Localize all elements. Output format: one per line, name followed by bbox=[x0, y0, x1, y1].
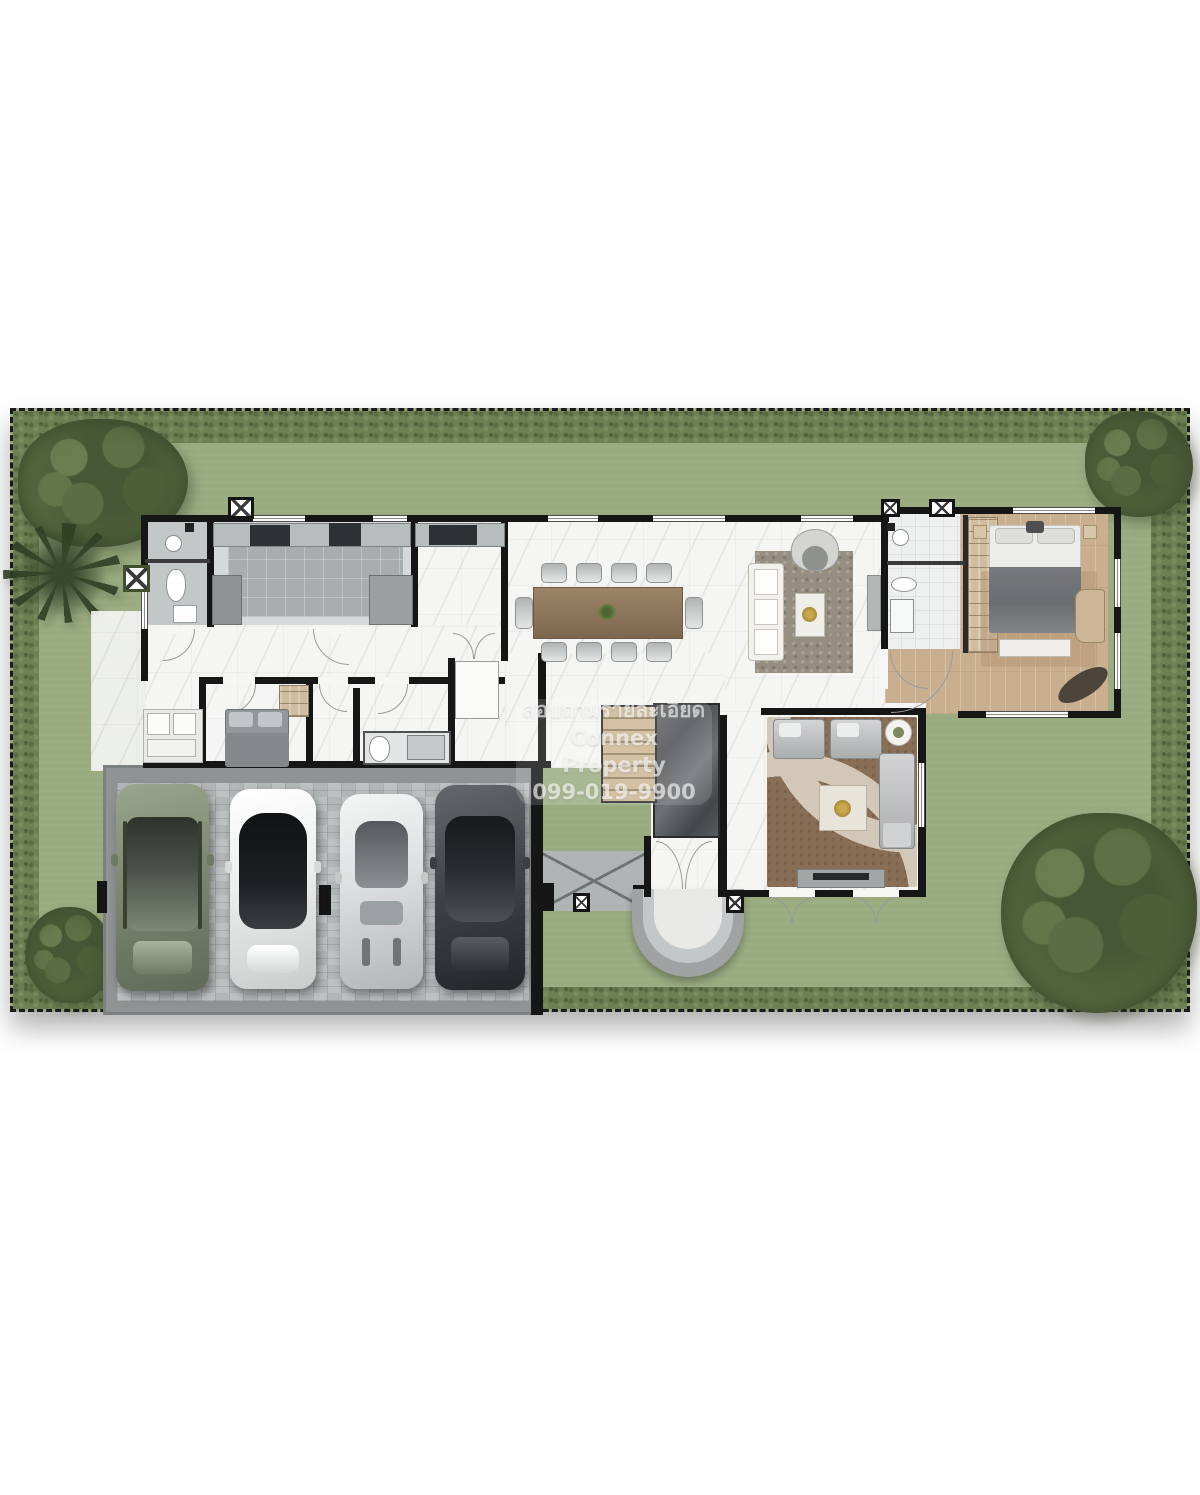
tree-top-right bbox=[1085, 411, 1193, 517]
car-mirror-icon bbox=[207, 854, 214, 866]
bed-bench bbox=[999, 639, 1071, 657]
floor-plan-canvas: สอบถามรายละเอียด Connex Property 099-019… bbox=[0, 0, 1200, 1495]
column-x-icon bbox=[726, 893, 744, 913]
car-glass bbox=[355, 821, 408, 887]
shower-partition bbox=[145, 559, 210, 563]
toilet-icon bbox=[369, 736, 390, 762]
window bbox=[918, 763, 925, 827]
french-door-arc bbox=[853, 897, 876, 923]
window bbox=[253, 515, 305, 522]
bench-cushion bbox=[173, 713, 196, 735]
car-mirror-icon bbox=[314, 861, 321, 873]
drain-icon bbox=[185, 523, 194, 532]
car-mirror-icon bbox=[335, 872, 342, 884]
car-windshield bbox=[360, 901, 403, 924]
sink-counter-icon bbox=[407, 735, 445, 760]
window bbox=[1013, 507, 1095, 514]
car-hood bbox=[247, 945, 299, 973]
driveway-ramp bbox=[543, 851, 645, 911]
window bbox=[373, 515, 407, 522]
shower-partition bbox=[887, 561, 965, 565]
bed-blanket bbox=[989, 567, 1081, 633]
window bbox=[1114, 559, 1121, 607]
table-plant-icon bbox=[598, 604, 616, 620]
dining-chair-end bbox=[685, 597, 703, 629]
sofa-cushion bbox=[754, 629, 778, 655]
chaise-cushion bbox=[883, 823, 911, 847]
french-door-arc bbox=[876, 897, 899, 923]
shower-tray bbox=[890, 599, 914, 633]
pillow bbox=[258, 712, 282, 727]
dining-chair-end bbox=[515, 597, 533, 629]
hedge-top bbox=[13, 411, 1187, 443]
bath-stool bbox=[173, 605, 197, 623]
large-tree-bottom-right bbox=[1001, 813, 1197, 1013]
watermark: สอบถามรายละเอียด Connex Property 099-019… bbox=[516, 699, 712, 805]
door-gap bbox=[881, 649, 888, 689]
dining-chair bbox=[541, 563, 567, 583]
dining-chair bbox=[611, 642, 637, 662]
sofa-throw bbox=[779, 723, 801, 737]
column-x-icon bbox=[228, 497, 254, 519]
car-glass-roof bbox=[239, 813, 306, 929]
bed-blanket bbox=[225, 733, 289, 767]
kitchen-counter bbox=[213, 523, 411, 547]
sink-icon bbox=[891, 577, 917, 592]
french-door-gap bbox=[853, 890, 899, 897]
corner-plant-icon bbox=[885, 719, 912, 746]
bedroom-chair bbox=[1075, 589, 1105, 643]
window bbox=[653, 515, 725, 522]
hood-vent bbox=[362, 938, 370, 965]
column-x-icon bbox=[881, 499, 900, 517]
gold-plant-icon bbox=[802, 607, 817, 622]
car-glass bbox=[445, 816, 515, 923]
window bbox=[986, 711, 1068, 718]
roof-rail bbox=[198, 821, 202, 929]
skylight-x-icon bbox=[929, 499, 955, 517]
watermark-line-phone: 099-019-9900 bbox=[532, 779, 696, 806]
door-gap bbox=[223, 677, 255, 684]
car-mirror-icon bbox=[225, 861, 232, 873]
sofa-cushion bbox=[754, 599, 778, 625]
bench-cushion bbox=[147, 713, 170, 735]
dining-chair bbox=[576, 642, 602, 662]
dining-chair bbox=[646, 563, 672, 583]
car-sedan-white bbox=[230, 789, 316, 989]
garage-post-left bbox=[97, 881, 107, 913]
shower-head-icon bbox=[892, 529, 909, 546]
wall-west-hall bbox=[141, 629, 148, 681]
nightstand bbox=[973, 525, 987, 539]
closet-interior bbox=[455, 661, 499, 719]
ac-unit-icon bbox=[123, 565, 150, 592]
window bbox=[141, 587, 148, 629]
palm-tree-icon bbox=[3, 523, 121, 623]
roof-rail bbox=[123, 821, 127, 929]
car-sports-silver bbox=[340, 794, 423, 989]
car-sedan-dark bbox=[435, 785, 525, 990]
pillow bbox=[229, 712, 253, 727]
lounge-chair bbox=[791, 529, 839, 571]
dining-chair bbox=[611, 563, 637, 583]
bench-cushion bbox=[147, 739, 196, 757]
gold-plant-icon bbox=[834, 800, 851, 817]
watermark-line-brand: Connex Property bbox=[516, 725, 712, 780]
car-mirror-icon bbox=[430, 857, 437, 869]
car-hood bbox=[133, 941, 193, 974]
kitchen-sink-icon bbox=[329, 523, 361, 546]
car-glass bbox=[126, 817, 199, 931]
throw-pillow bbox=[1026, 521, 1044, 533]
small-tree-bottom-left bbox=[25, 907, 111, 1003]
car-mirror-icon bbox=[111, 854, 118, 866]
nightstand bbox=[1083, 525, 1097, 539]
hood-vent bbox=[393, 938, 401, 965]
kitchen-cabinet bbox=[212, 575, 242, 625]
console-table bbox=[867, 575, 881, 631]
window bbox=[548, 515, 598, 522]
car-suv-sage bbox=[116, 784, 209, 991]
car-mirror-icon bbox=[523, 857, 530, 869]
car-mirror-icon bbox=[421, 872, 428, 884]
garage-post-center bbox=[319, 885, 331, 915]
door-gap bbox=[375, 677, 409, 684]
tv-icon bbox=[813, 873, 869, 880]
toilet-icon bbox=[166, 569, 186, 602]
sink-icon bbox=[165, 535, 182, 552]
door-gap bbox=[318, 677, 348, 684]
cooktop-icon bbox=[250, 525, 290, 546]
sofa-throw bbox=[837, 723, 859, 737]
drain-icon bbox=[887, 523, 895, 531]
column-x-icon bbox=[573, 893, 590, 912]
window bbox=[1114, 633, 1121, 689]
dining-chair bbox=[576, 563, 602, 583]
watermark-line-thai: สอบถามรายละเอียด bbox=[523, 697, 705, 724]
wall-bath2-west bbox=[353, 688, 360, 768]
car-hood bbox=[451, 937, 509, 972]
french-door-arc bbox=[792, 897, 815, 923]
pantry-sink-icon bbox=[429, 525, 477, 545]
french-door-arc bbox=[769, 897, 792, 923]
refrigerator-icon bbox=[369, 575, 413, 625]
wall-foyer-west bbox=[644, 836, 651, 897]
dining-chair bbox=[646, 642, 672, 662]
sofa-cushion bbox=[754, 569, 778, 595]
french-door-gap bbox=[769, 890, 815, 897]
dining-chair bbox=[541, 642, 567, 662]
window bbox=[801, 515, 853, 522]
property-lawn: สอบถามรายละเอียด Connex Property 099-019… bbox=[10, 408, 1190, 1012]
